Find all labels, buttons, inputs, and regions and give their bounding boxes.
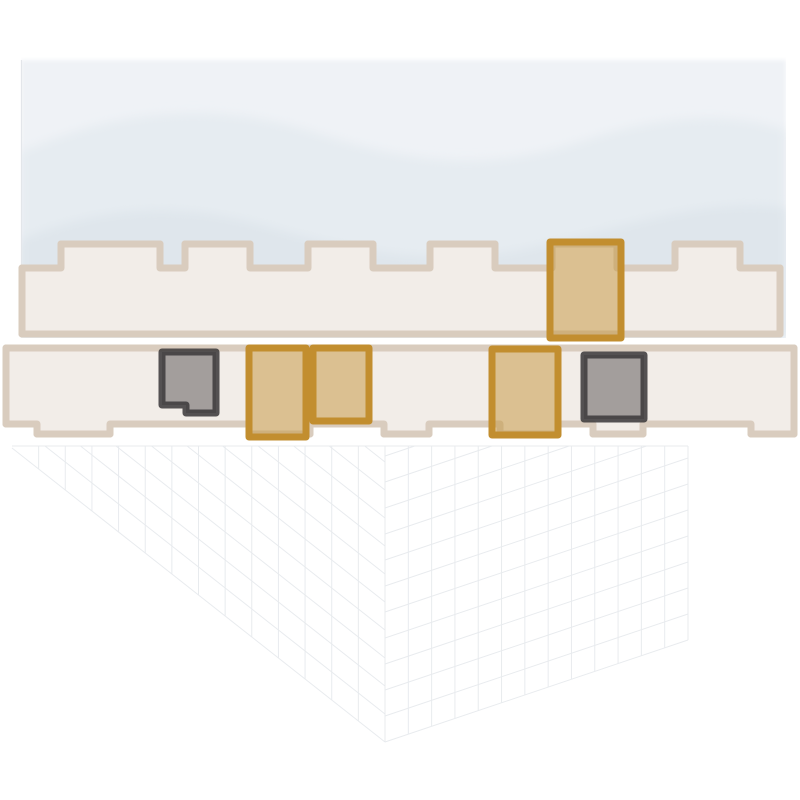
unit-upper-gold-1[interactable] xyxy=(550,242,621,338)
unit-lower-gold-1[interactable] xyxy=(249,348,306,437)
building-wireframe xyxy=(12,446,688,742)
scene-canvas xyxy=(0,0,800,800)
floor-strip-lower-plan xyxy=(6,348,794,434)
unit-lower-gold-3[interactable] xyxy=(492,349,558,435)
unit-lower-dark-1[interactable] xyxy=(162,352,216,413)
unit-lower-gold-2[interactable] xyxy=(313,348,369,421)
unit-lower-dark-2[interactable] xyxy=(584,355,644,419)
building-explorer xyxy=(0,0,800,800)
floor-strip-lower xyxy=(6,348,794,434)
